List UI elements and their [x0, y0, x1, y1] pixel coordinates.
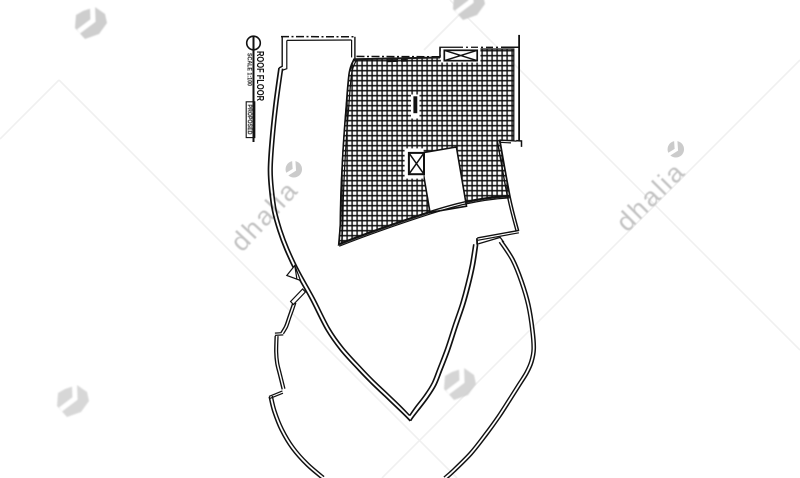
svg-text:PROPOSED: PROPOSED: [246, 105, 253, 135]
svg-text:SCALE 1:100: SCALE 1:100: [246, 53, 252, 87]
svg-text:ROOF FLOOR: ROOF FLOOR: [254, 51, 266, 101]
